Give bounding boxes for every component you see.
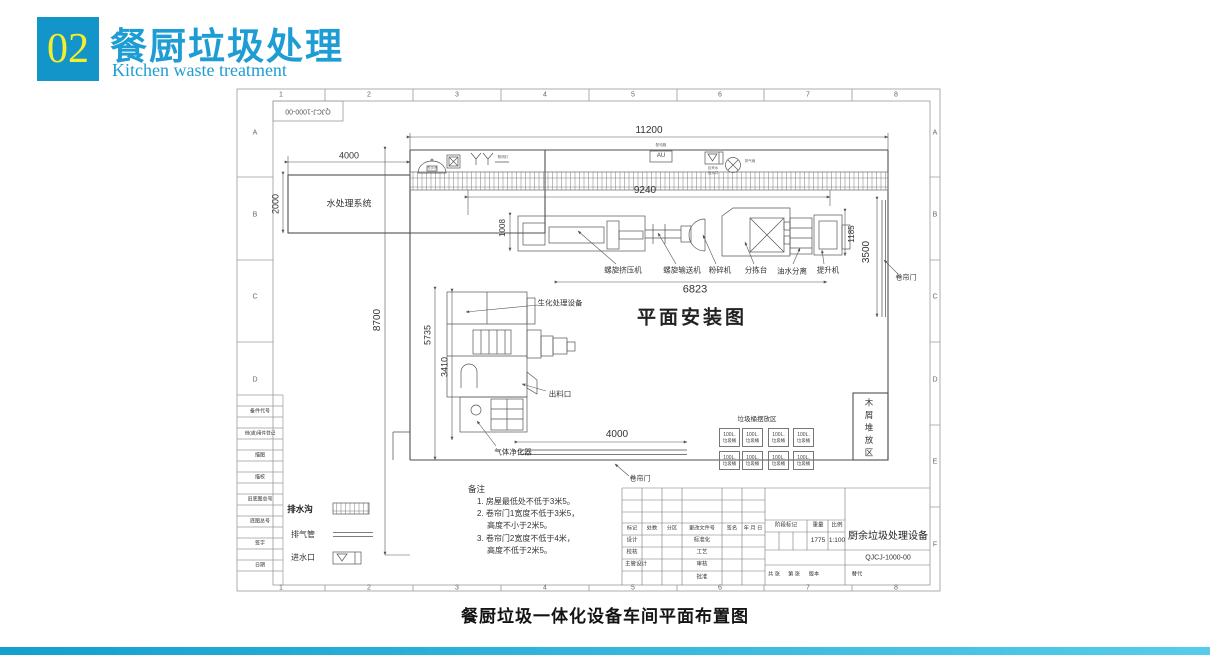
tb-rev-col: 更改文件号: [689, 526, 715, 531]
cad-linework: [233, 88, 943, 593]
tb-rev-col: 处数: [647, 526, 657, 531]
note-line: 3. 卷帘门2宽度不低于4米，: [477, 535, 575, 543]
tb-rev-col: 标记: [627, 526, 637, 531]
cad-drawing-sheet: 1 2 3 4 5 6 7 8 1 2 3 4 5 6 7 8 A B C D …: [233, 88, 943, 593]
dist-box-tiny-label: 配电箱: [656, 144, 667, 148]
legend-symbols: [333, 503, 373, 564]
frame-col: 7: [806, 92, 810, 99]
bin-name: 垃圾桶: [797, 438, 811, 443]
bin-100l: 100L.垃圾桶: [719, 428, 740, 447]
dim-equip-left: 1008: [499, 219, 507, 237]
note-line: 高度不低于2米5。: [487, 547, 552, 555]
page-subtitle: Kitchen waste treatment: [112, 60, 287, 81]
workshop-walls: [288, 150, 888, 460]
plan-title: 平面安装图: [637, 309, 747, 328]
frame-row: E: [933, 459, 938, 466]
tb-rev-col: 分区: [667, 526, 677, 531]
legend-vent-label: 排气管: [291, 531, 315, 539]
frame-row: D: [252, 377, 257, 384]
wood-area-label: 木屑堆放区: [863, 398, 875, 461]
dim-door-right: 3500: [862, 241, 872, 263]
strip-row: 备件代号: [250, 410, 270, 415]
frame-row: D: [932, 377, 937, 384]
bin-name: 垃圾桶: [746, 438, 760, 443]
strip-row: 底图总号: [250, 520, 270, 525]
equip-label-crusher: 粉碎机: [709, 266, 732, 274]
frame-col: 2: [367, 92, 371, 99]
tb-approve: 批准: [696, 575, 707, 581]
notes-title: 备注: [468, 485, 485, 494]
bin-name: 垃圾桶: [772, 438, 786, 443]
frame-col: 3: [455, 92, 459, 99]
tb-drawing-number: QJCJ-1000-00: [865, 555, 911, 562]
frame-row: B: [253, 212, 258, 219]
dim-equip-width: 6823: [683, 285, 707, 296]
section-number-box: 02: [37, 17, 99, 81]
tb-check: 校核: [626, 550, 637, 556]
dim-total-width: 11200: [635, 126, 662, 136]
tb-replace: 替代: [852, 572, 862, 577]
au-box-text: AU: [657, 153, 665, 159]
dim-water-height: 2000: [272, 194, 281, 214]
tb-page: 第 张: [788, 572, 800, 577]
tb-audit: 审核: [696, 562, 707, 568]
tb-scale-label: 比例: [831, 523, 842, 529]
dim-equip-right: 1185: [848, 225, 856, 242]
bin-name: 垃圾桶: [797, 461, 811, 466]
exhaust-fan-icon: [726, 158, 741, 173]
gas-purifier-label: 气体净化器: [494, 448, 532, 456]
strip-row: 描校: [255, 476, 265, 481]
frame-col: 5: [631, 585, 635, 592]
water-inlet-icon: [705, 152, 723, 164]
legend-inlet-label: 进水口: [291, 554, 315, 562]
equip-label-oil-water-sep: 油水分离: [777, 267, 807, 275]
tb-scale-value: 1:100: [829, 538, 845, 545]
side-strip-grid: [237, 395, 283, 585]
tb-version: 版本: [809, 572, 819, 577]
frame-col: 7: [806, 585, 810, 592]
bin-name: 垃圾桶: [723, 461, 737, 466]
frame-col: 6: [718, 585, 722, 592]
equip-label-lifter: 提升机: [817, 266, 840, 274]
bottom-accent-bar: [0, 647, 1210, 655]
note-line: 1. 房屋最低处不低于3米5。: [477, 498, 575, 506]
bins-area-label: 垃圾桶摆放区: [738, 417, 777, 424]
door-bottom-label: 卷帘门: [630, 476, 651, 483]
strip-row: 借(通)用件登记: [245, 432, 276, 437]
dimension-lines: [283, 133, 888, 555]
bin-100l: 100L.垃圾桶: [793, 451, 814, 470]
tb-rev-col: 签名: [727, 526, 737, 531]
tb-chief-design: 主管设计: [625, 562, 647, 568]
frame-col: 1: [279, 92, 283, 99]
frame-col: 5: [631, 92, 635, 99]
tb-weight-value: 1775: [811, 538, 825, 545]
dim-left-mid: 5735: [424, 325, 433, 345]
figure-caption: 餐厨垃圾一体化设备车间平面布置图: [0, 602, 1210, 627]
bio-unit-label: 生化处理设备: [538, 299, 583, 307]
tb-standardize: 标准化: [694, 538, 711, 544]
frame-row: B: [933, 212, 938, 219]
inlet-tiny-label-2: 进水口: [708, 172, 719, 176]
equip-label-screw-conveyor: 螺旋输送机: [663, 266, 701, 274]
basin-tiny-label: 洗手池: [427, 167, 438, 171]
dim-inner-width: 9240: [634, 186, 656, 196]
strip-row: 签字: [255, 542, 265, 547]
bin-100l: 100L.垃圾桶: [742, 451, 763, 470]
bin-100l: 100L.垃圾桶: [742, 428, 763, 447]
bin-100l: 100L.垃圾桶: [719, 451, 740, 470]
frame-col: 3: [455, 585, 459, 592]
tb-product-name: 厨余垃圾处理设备: [848, 532, 928, 542]
tb-design: 设计: [626, 538, 637, 544]
outlet-label: 出料口: [549, 390, 572, 398]
legend-drain-label: 排水沟: [287, 505, 313, 514]
frame-row: F: [933, 542, 937, 549]
mirrored-stamp: QJCJ-1000-00: [285, 108, 331, 115]
frame-col: 4: [543, 585, 547, 592]
strip-row: 日期: [255, 564, 265, 569]
equip-label-sorting-table: 分拣台: [745, 266, 768, 274]
bin-name: 垃圾桶: [772, 461, 786, 466]
frame-col: 4: [543, 92, 547, 99]
frame-col: 6: [718, 92, 722, 99]
bin-name: 垃圾桶: [746, 461, 760, 466]
floor-drain-icon: [447, 155, 460, 168]
bin-100l: 100L.垃圾桶: [768, 428, 789, 447]
equip-label-screw-press: 螺旋挤压机: [604, 266, 642, 274]
bin-name: 垃圾桶: [723, 438, 737, 443]
pretreatment-equipment: [518, 208, 850, 256]
dim-left-total: 8700: [373, 309, 383, 331]
frame-col: 2: [367, 585, 371, 592]
fan-tiny-label: 排气扇: [745, 160, 756, 164]
frame-col: 8: [894, 92, 898, 99]
gas-purifier-unit: [460, 397, 527, 432]
tb-weight-label: 重量: [812, 523, 823, 529]
note-line: 2. 卷帘门1宽度不低于3米5，: [477, 510, 579, 518]
slide: 02 餐厨垃圾处理 Kitchen waste treatment: [0, 0, 1210, 655]
bin-100l: 100L.垃圾桶: [793, 428, 814, 447]
note-line: 高度不小于2米5。: [487, 522, 552, 530]
tb-process: 工艺: [696, 550, 707, 556]
lamp-tiny-label: 照明灯: [498, 156, 509, 160]
section-number: 02: [47, 25, 89, 73]
frame-col: 8: [894, 585, 898, 592]
frame-row: C: [932, 294, 937, 301]
bin-100l: 100L.垃圾桶: [768, 451, 789, 470]
strip-row: 旧底图总号: [247, 498, 272, 503]
tb-rev-col: 年 月 日: [744, 526, 762, 531]
dim-door-bottom: 4000: [606, 430, 628, 440]
water-room-label: 水处理系统: [326, 200, 371, 209]
tb-stage-mark: 阶段标记: [775, 523, 797, 529]
dim-water-width: 4000: [339, 152, 359, 161]
sheet-frame: [237, 89, 940, 591]
frame-row: C: [252, 294, 257, 301]
door-right-label: 卷帘门: [896, 275, 917, 282]
frame-row: A: [253, 130, 258, 137]
dim-bio-height: 3410: [441, 357, 450, 377]
frame-col: 1: [279, 585, 283, 592]
frame-row: A: [933, 130, 938, 137]
tb-sheets: 共 张: [768, 572, 780, 577]
strip-row: 描图: [255, 454, 265, 459]
